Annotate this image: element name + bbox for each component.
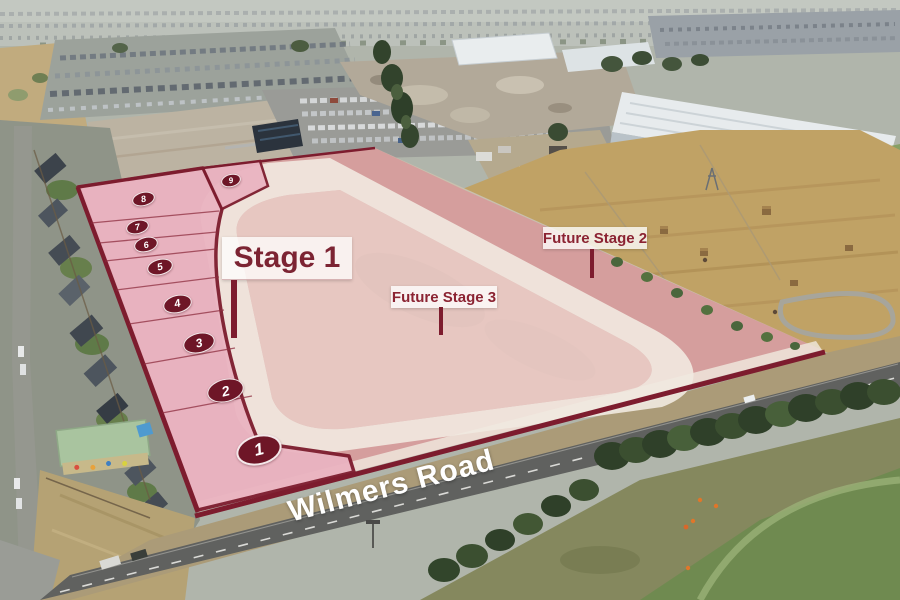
future-stage2-leader-line xyxy=(590,249,594,278)
future-stage2-label: Future Stage 2 xyxy=(543,227,647,249)
aerial-site-map: 1 2 3 4 5 6 7 8 9 Stage 1 Future Stage 2… xyxy=(0,0,900,600)
stage1-leader-line xyxy=(231,280,237,338)
stage1-label: Stage 1 xyxy=(222,237,352,280)
future-stage3-leader-line xyxy=(439,307,443,335)
future-stage3-label: Future Stage 3 xyxy=(391,286,497,308)
